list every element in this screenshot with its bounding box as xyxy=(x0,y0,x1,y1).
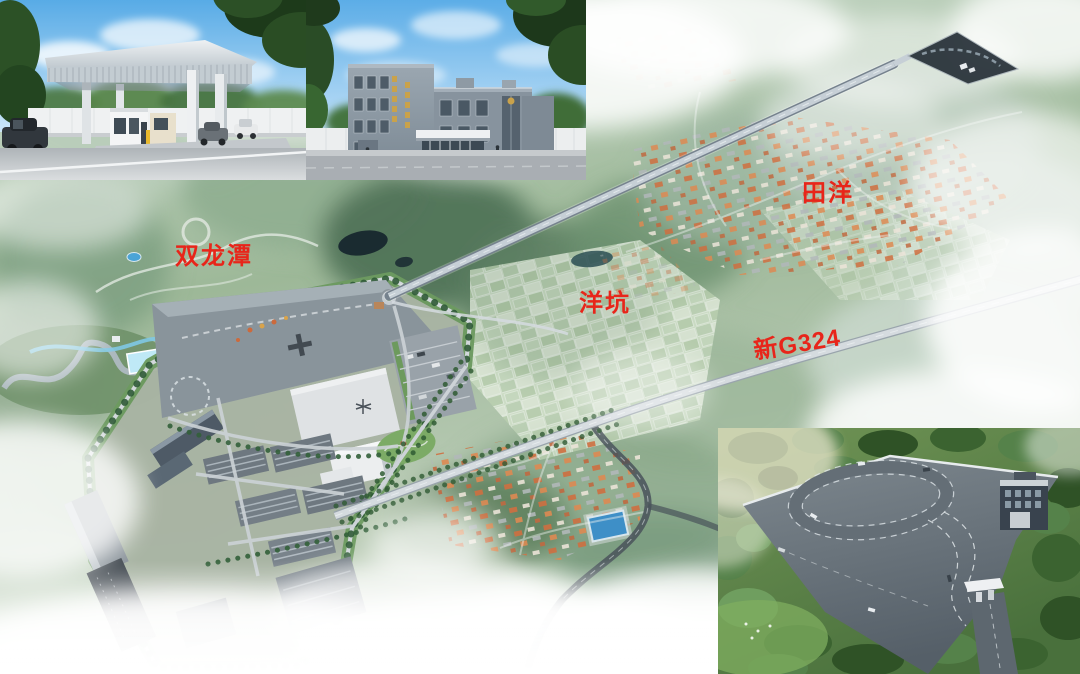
inset-test-track-rendering xyxy=(718,428,1080,674)
gate-booths xyxy=(110,108,176,146)
emblem xyxy=(508,98,515,105)
label-shuanglongtan: 双龙潭 xyxy=(175,245,253,269)
track-building xyxy=(1000,472,1048,530)
inset-entrance-gate-rendering xyxy=(0,0,308,180)
masterplan-figure: 双龙潭 田洋 洋坑 新G324 xyxy=(0,0,1080,674)
inset-office-building-rendering xyxy=(306,0,586,180)
label-tianyang: 田洋 xyxy=(802,182,854,206)
label-yangkeng: 洋坑 xyxy=(579,292,631,316)
